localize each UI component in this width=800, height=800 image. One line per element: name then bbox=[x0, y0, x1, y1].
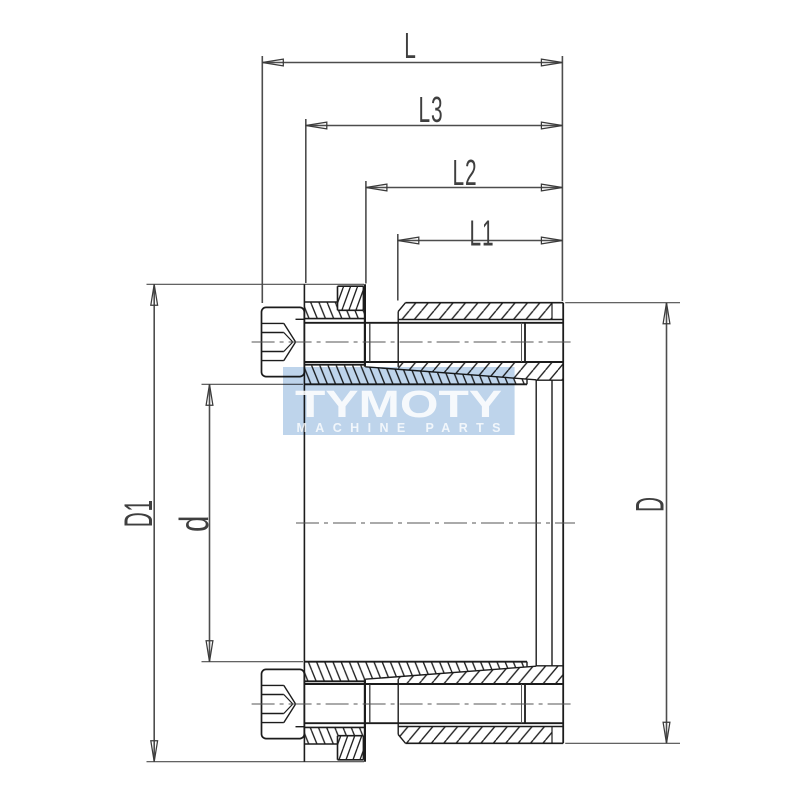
svg-text:L: L bbox=[404, 26, 416, 66]
svg-text:L2: L2 bbox=[453, 153, 478, 193]
svg-text:L3: L3 bbox=[419, 90, 444, 130]
svg-text:L1: L1 bbox=[470, 214, 495, 254]
svg-text:d: d bbox=[171, 514, 217, 532]
svg-text:D: D bbox=[627, 496, 672, 512]
svg-text:TYMOTY: TYMOTY bbox=[295, 384, 502, 426]
svg-text:D1: D1 bbox=[115, 499, 160, 527]
